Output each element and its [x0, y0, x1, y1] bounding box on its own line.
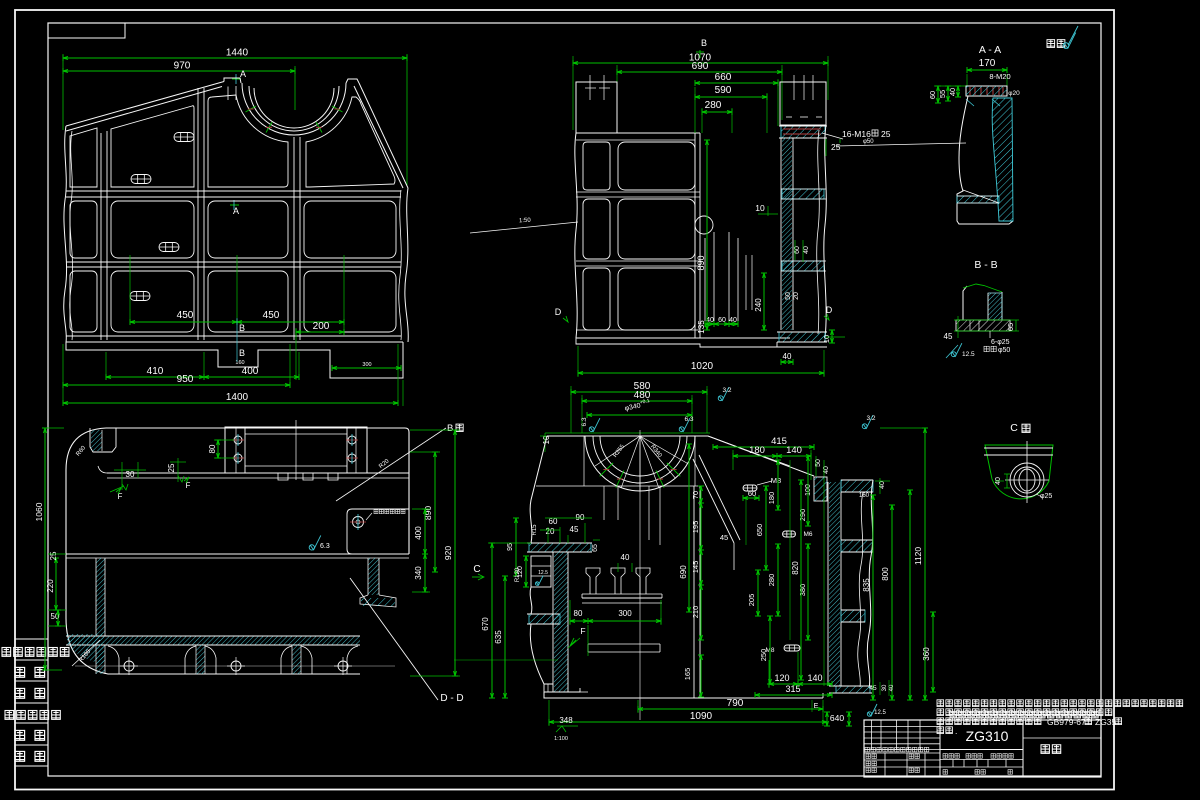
svg-text:R15: R15	[532, 524, 538, 536]
svg-text:195: 195	[691, 521, 700, 534]
svg-text:12.5: 12.5	[962, 351, 975, 358]
svg-text:1090: 1090	[690, 711, 713, 722]
svg-text:C: C	[1010, 422, 1018, 434]
svg-text:A - A: A - A	[979, 44, 1001, 56]
svg-text:290: 290	[798, 509, 807, 522]
svg-text:40: 40	[889, 684, 895, 691]
svg-text:60: 60	[748, 489, 756, 498]
svg-text:145: 145	[691, 561, 700, 574]
svg-text:400: 400	[414, 526, 423, 540]
svg-text:210: 210	[691, 606, 700, 619]
svg-text:950: 950	[177, 374, 194, 385]
svg-text:70: 70	[691, 491, 700, 499]
svg-text:25: 25	[881, 129, 891, 139]
svg-text:690: 690	[692, 61, 709, 72]
svg-text:95: 95	[507, 543, 514, 551]
svg-text:3.2: 3.2	[722, 387, 731, 394]
svg-text:C: C	[473, 564, 480, 575]
svg-text:590: 590	[715, 85, 732, 96]
svg-text:10: 10	[822, 335, 831, 343]
svg-text:20: 20	[793, 292, 800, 300]
svg-text:16-M16: 16-M16	[842, 129, 871, 139]
svg-text:GB979-67: GB979-67	[1047, 717, 1086, 727]
svg-text:D: D	[555, 307, 562, 317]
svg-text:80: 80	[208, 444, 217, 453]
svg-text:1:100: 1:100	[554, 736, 568, 742]
svg-text:D: D	[826, 305, 833, 315]
svg-text:φ20: φ20	[1008, 90, 1020, 97]
svg-text:B: B	[447, 423, 453, 434]
svg-text:6.3: 6.3	[581, 417, 588, 426]
svg-text:1020: 1020	[691, 361, 714, 372]
svg-text:890: 890	[696, 255, 706, 270]
svg-text:M6: M6	[803, 531, 812, 538]
svg-text:240: 240	[754, 298, 763, 312]
svg-text:280: 280	[767, 574, 776, 587]
svg-text:1:50: 1:50	[519, 218, 532, 225]
svg-text:55: 55	[938, 90, 947, 98]
svg-text:348: 348	[559, 716, 573, 725]
svg-text:6-φ25: 6-φ25	[991, 339, 1010, 346]
svg-text:B - B: B - B	[974, 259, 997, 271]
svg-text:640: 640	[830, 713, 844, 723]
svg-text:80: 80	[574, 609, 583, 618]
svg-text:B: B	[239, 323, 245, 333]
svg-text:970: 970	[174, 61, 191, 72]
svg-text:40: 40	[729, 317, 737, 324]
svg-text:8-M20: 8-M20	[989, 72, 1010, 81]
svg-text:30: 30	[882, 684, 888, 691]
svg-text:B: B	[701, 38, 707, 48]
svg-text:B: B	[239, 348, 245, 358]
svg-text:50: 50	[785, 292, 792, 300]
svg-text:1120: 1120	[913, 547, 923, 566]
svg-text:450: 450	[177, 310, 194, 321]
svg-text:45: 45	[869, 685, 877, 692]
svg-text:40: 40	[948, 88, 957, 96]
svg-text:90: 90	[576, 513, 585, 522]
svg-text:120: 120	[774, 673, 789, 683]
svg-text:660: 660	[715, 72, 732, 83]
svg-text:450: 450	[263, 310, 280, 321]
svg-text:60: 60	[718, 317, 726, 324]
svg-text:200: 200	[313, 321, 330, 332]
svg-text:10: 10	[755, 203, 765, 213]
svg-text:250: 250	[759, 649, 768, 662]
svg-text:635: 635	[494, 630, 503, 644]
svg-text:1400: 1400	[226, 392, 249, 403]
svg-text:20: 20	[546, 527, 555, 536]
svg-text:170: 170	[979, 58, 996, 69]
svg-text:835: 835	[862, 578, 871, 592]
svg-text:65: 65	[592, 544, 599, 552]
svg-text:40: 40	[783, 352, 792, 361]
svg-text:1440: 1440	[226, 48, 249, 59]
svg-text:ZG310: ZG310	[966, 728, 1009, 744]
svg-text:.: .	[955, 726, 957, 736]
svg-text:140: 140	[807, 673, 822, 683]
svg-text:410: 410	[147, 366, 164, 377]
svg-text:415: 415	[771, 436, 787, 447]
svg-text:400: 400	[242, 366, 259, 377]
svg-text:E: E	[814, 703, 819, 710]
svg-text:6.3: 6.3	[684, 416, 693, 423]
svg-text:40: 40	[803, 246, 810, 254]
svg-text:360: 360	[922, 647, 931, 661]
svg-text:25: 25	[167, 463, 176, 472]
svg-text:12.5: 12.5	[538, 570, 548, 576]
svg-text:φ50: φ50	[863, 139, 874, 145]
svg-text:920: 920	[443, 546, 453, 560]
svg-text:R120: R120	[515, 567, 521, 582]
svg-text:380: 380	[798, 584, 807, 597]
svg-text:45: 45	[944, 332, 953, 341]
svg-text:60: 60	[928, 91, 937, 99]
svg-text:135: 135	[697, 320, 706, 334]
svg-text:180: 180	[749, 445, 765, 456]
svg-text:12.5: 12.5	[874, 710, 886, 716]
svg-text:300: 300	[618, 609, 632, 618]
svg-text:340: 340	[414, 566, 423, 580]
svg-text:180: 180	[767, 492, 776, 505]
svg-text:F: F	[580, 626, 585, 636]
svg-text:690: 690	[679, 565, 688, 579]
svg-text:650: 650	[755, 524, 764, 537]
svg-text:280: 280	[705, 100, 722, 111]
svg-text:45: 45	[570, 525, 579, 534]
svg-text:3.2: 3.2	[866, 415, 875, 422]
svg-text:40: 40	[621, 553, 630, 562]
svg-text:A: A	[240, 69, 246, 79]
svg-text:25: 25	[49, 551, 58, 560]
svg-text:800: 800	[881, 567, 890, 581]
svg-text:6.3: 6.3	[320, 543, 330, 550]
svg-text:300: 300	[362, 362, 371, 368]
svg-text:25: 25	[831, 142, 841, 152]
svg-text:ZG35: ZG35	[1095, 717, 1117, 727]
svg-text:65: 65	[1006, 323, 1015, 331]
svg-text:670: 670	[481, 617, 490, 631]
svg-text:M8: M8	[771, 476, 781, 485]
svg-text:φ25: φ25	[1040, 493, 1052, 500]
svg-text:D - D: D - D	[440, 693, 463, 704]
svg-text:220: 220	[46, 579, 55, 593]
svg-text:45: 45	[720, 533, 728, 542]
svg-text:1060: 1060	[34, 502, 44, 521]
svg-text:φ50: φ50	[998, 347, 1010, 354]
svg-text:790: 790	[727, 698, 744, 709]
svg-text:30: 30	[126, 470, 135, 479]
svg-text:165: 165	[683, 668, 692, 681]
svg-text:160: 160	[859, 493, 870, 499]
svg-text:140: 140	[786, 445, 802, 456]
svg-text:205: 205	[747, 594, 756, 607]
svg-text:820: 820	[791, 561, 800, 575]
